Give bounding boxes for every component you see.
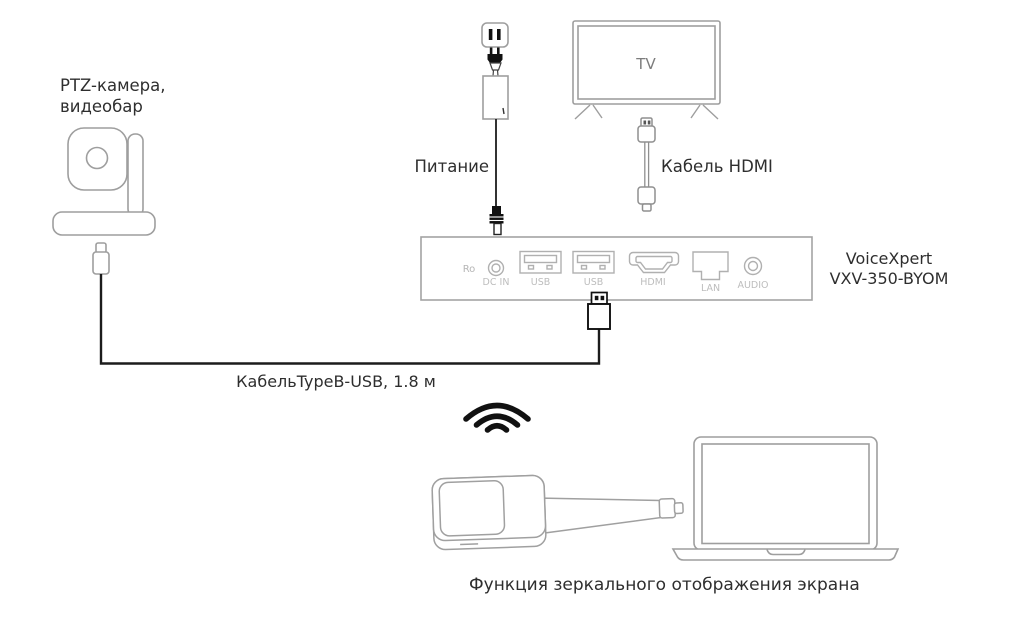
laptop-icon xyxy=(673,437,898,560)
power-outlet-icon xyxy=(482,23,508,47)
hdmi-port-label: HDMI xyxy=(640,277,665,288)
wifi-icon xyxy=(466,406,528,431)
power-plug-icon xyxy=(488,48,503,77)
dc-connector-icon xyxy=(490,206,504,235)
usb-port-1-label: USB xyxy=(531,277,551,288)
device-model-line1: VoiceXpert xyxy=(820,249,958,269)
power-label: Питание xyxy=(407,157,489,178)
hdmi-cable-icon xyxy=(638,118,655,211)
usb-port-2-label: USB xyxy=(584,277,604,288)
power-adapter-icon xyxy=(483,76,508,119)
usb-cable-label: КабельTypeB-USB, 1.8 м xyxy=(176,372,496,392)
audio-port-label: AUDIO xyxy=(737,280,768,291)
dongle-neck xyxy=(543,494,662,533)
hdmi-cable-label: Кабель HDMI xyxy=(661,157,773,178)
device-model-line2: VXV-350-BYOM xyxy=(820,269,958,289)
tv-screen-label: TV xyxy=(635,55,656,73)
connection-diagram: TV xyxy=(0,0,1018,628)
camera-label-line1: PTZ-камера, xyxy=(60,76,166,97)
dc-in-port-label: DC IN xyxy=(483,277,510,288)
caption: Функция зеркального отображения экрана xyxy=(469,575,860,596)
ptz-camera-icon xyxy=(53,128,155,274)
ro-label: Ro xyxy=(463,264,476,275)
tv-legs xyxy=(575,105,718,119)
device-model-label: VoiceXpert VXV-350-BYOM xyxy=(820,249,958,289)
dongle-usb-tip xyxy=(659,499,675,519)
wireless-dongle-icon xyxy=(432,470,684,550)
camera-label: PTZ-камера, видеобар xyxy=(60,76,166,117)
usb-plug-icon xyxy=(588,293,610,330)
dongle-button xyxy=(439,480,505,536)
lan-port-label: LAN xyxy=(701,283,720,294)
camera-label-line2: видеобар xyxy=(60,97,166,118)
